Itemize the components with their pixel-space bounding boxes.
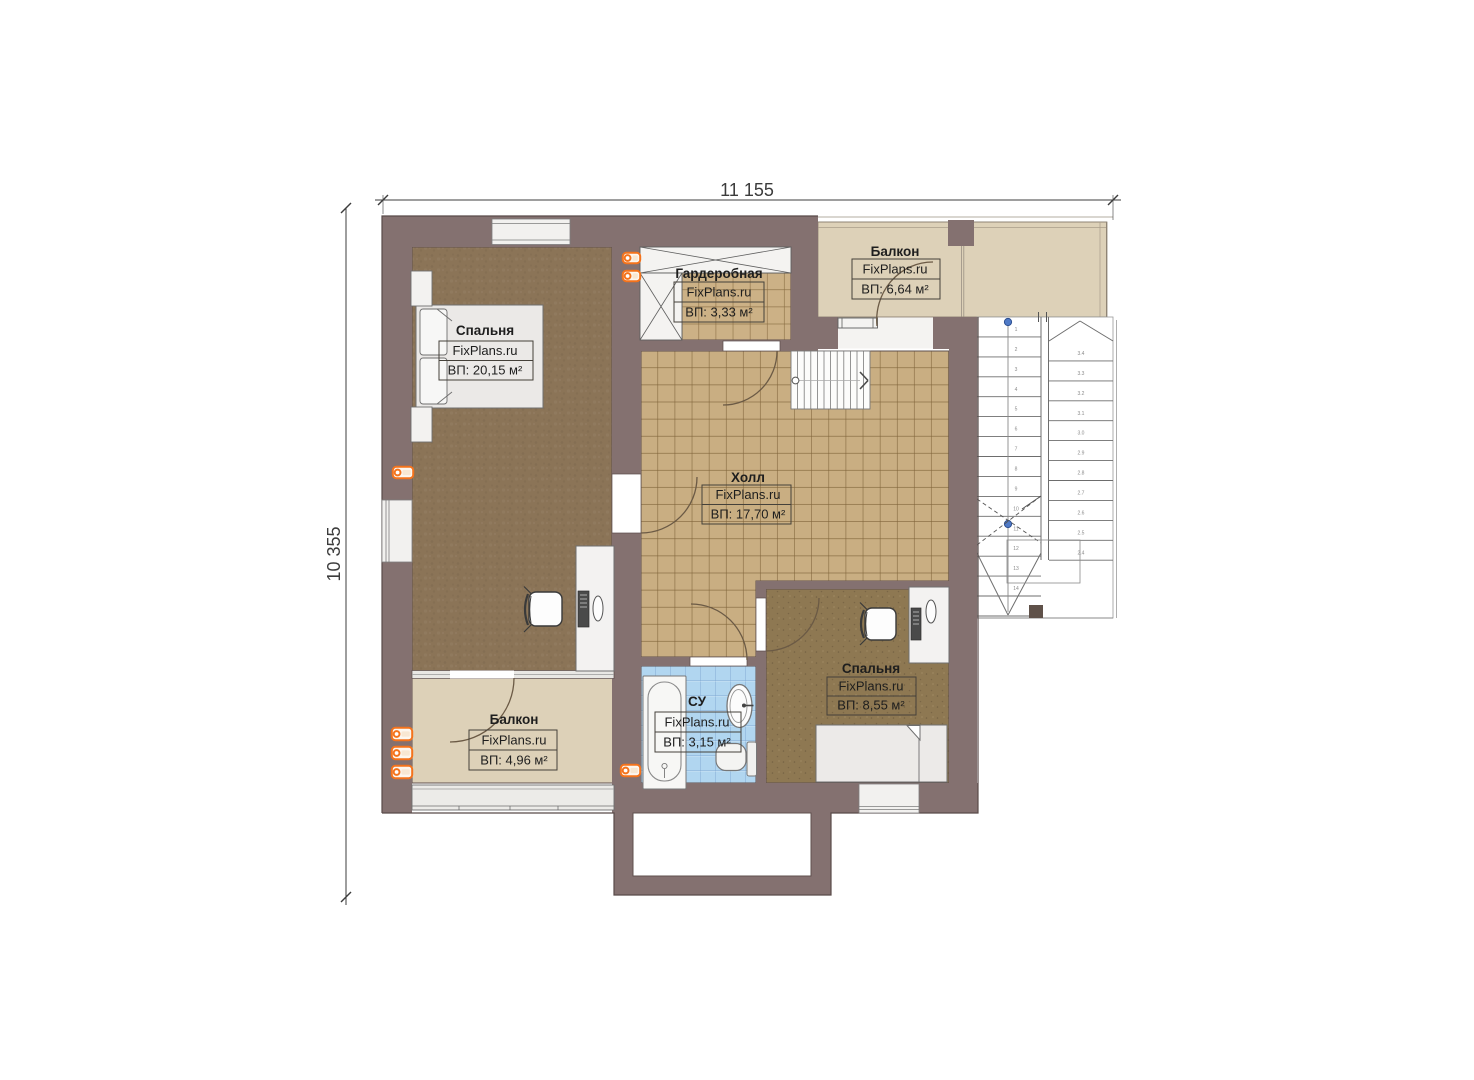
svg-text:Спальня: Спальня bbox=[456, 323, 514, 338]
svg-text:2.8: 2.8 bbox=[1078, 471, 1085, 477]
svg-text:11 155: 11 155 bbox=[720, 180, 774, 200]
svg-text:ВП: 17,70 м²: ВП: 17,70 м² bbox=[711, 507, 786, 522]
svg-text:ВП: 3,33 м²: ВП: 3,33 м² bbox=[685, 305, 753, 320]
svg-text:FixPlans.ru: FixPlans.ru bbox=[715, 487, 780, 502]
svg-text:10: 10 bbox=[1013, 506, 1019, 512]
svg-text:Холл: Холл bbox=[731, 470, 765, 485]
svg-text:ВП: 3,15 м²: ВП: 3,15 м² bbox=[663, 735, 731, 750]
svg-text:11: 11 bbox=[1013, 526, 1018, 532]
svg-text:13: 13 bbox=[1013, 566, 1019, 572]
svg-text:Балкон: Балкон bbox=[871, 244, 920, 259]
svg-text:3.2: 3.2 bbox=[1078, 391, 1085, 397]
svg-text:ВП: 8,55 м²: ВП: 8,55 м² bbox=[837, 698, 905, 713]
svg-text:3.4: 3.4 bbox=[1078, 351, 1085, 357]
svg-text:2.6: 2.6 bbox=[1078, 510, 1085, 516]
svg-text:ВП: 6,64 м²: ВП: 6,64 м² bbox=[861, 282, 929, 297]
svg-text:СУ: СУ bbox=[688, 694, 707, 709]
svg-text:ВП: 20,15 м²: ВП: 20,15 м² bbox=[448, 363, 523, 378]
svg-text:8: 8 bbox=[1015, 467, 1018, 473]
svg-text:ВП: 4,96 м²: ВП: 4,96 м² bbox=[480, 753, 548, 768]
svg-text:Балкон: Балкон bbox=[490, 712, 539, 727]
svg-text:7: 7 bbox=[1015, 447, 1018, 453]
svg-text:Гардеробная: Гардеробная bbox=[675, 266, 762, 281]
svg-text:FixPlans.ru: FixPlans.ru bbox=[481, 733, 546, 748]
svg-text:3.1: 3.1 bbox=[1078, 411, 1085, 417]
svg-text:2.5: 2.5 bbox=[1078, 530, 1085, 536]
svg-text:2.4: 2.4 bbox=[1078, 550, 1085, 556]
svg-text:2.9: 2.9 bbox=[1078, 451, 1085, 457]
svg-text:10 355: 10 355 bbox=[324, 526, 344, 581]
svg-text:14: 14 bbox=[1013, 586, 1019, 592]
svg-text:9: 9 bbox=[1015, 486, 1018, 492]
svg-text:3.0: 3.0 bbox=[1078, 431, 1085, 437]
svg-text:4: 4 bbox=[1015, 387, 1018, 393]
svg-text:1: 1 bbox=[1015, 327, 1018, 333]
svg-text:FixPlans.ru: FixPlans.ru bbox=[838, 679, 903, 694]
svg-text:2.7: 2.7 bbox=[1078, 491, 1085, 497]
svg-text:5: 5 bbox=[1015, 407, 1018, 413]
svg-text:6: 6 bbox=[1015, 427, 1018, 433]
svg-text:3.3: 3.3 bbox=[1078, 371, 1085, 377]
svg-text:FixPlans.ru: FixPlans.ru bbox=[664, 715, 729, 730]
svg-text:2: 2 bbox=[1015, 347, 1018, 353]
svg-text:FixPlans.ru: FixPlans.ru bbox=[686, 285, 751, 300]
svg-text:Спальня: Спальня bbox=[842, 661, 900, 676]
svg-text:FixPlans.ru: FixPlans.ru bbox=[862, 262, 927, 277]
svg-text:FixPlans.ru: FixPlans.ru bbox=[452, 343, 517, 358]
svg-text:12: 12 bbox=[1013, 546, 1019, 552]
svg-text:3: 3 bbox=[1015, 367, 1018, 373]
